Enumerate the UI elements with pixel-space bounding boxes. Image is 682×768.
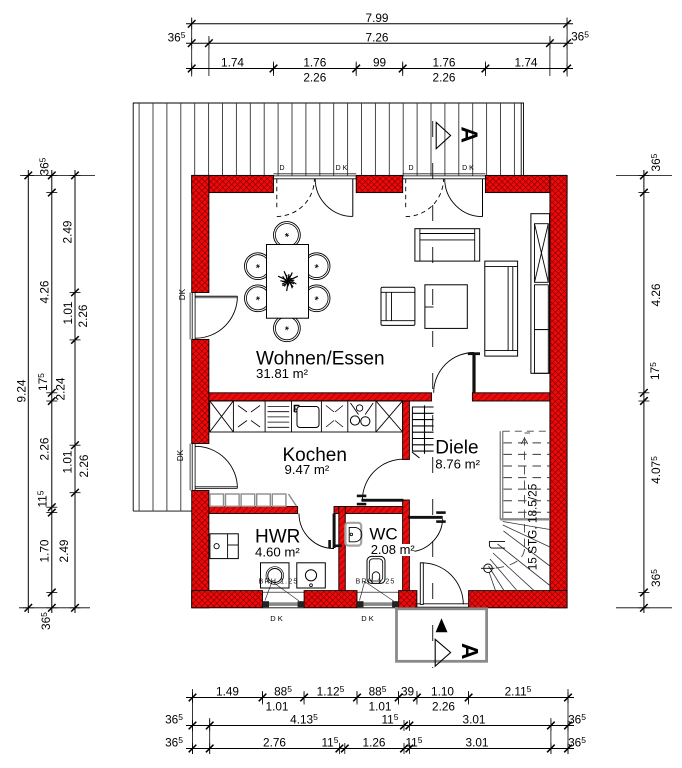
svg-text:2.08 m²: 2.08 m² bbox=[371, 542, 416, 557]
svg-text:9.47 m²: 9.47 m² bbox=[285, 462, 330, 477]
svg-text:1.76: 1.76 bbox=[433, 56, 456, 70]
svg-text:1.76: 1.76 bbox=[303, 56, 326, 70]
svg-text:8.76 m²: 8.76 m² bbox=[435, 457, 480, 472]
svg-text:2.26: 2.26 bbox=[303, 71, 326, 85]
svg-text:1.10: 1.10 bbox=[431, 684, 454, 698]
svg-text:1.26: 1.26 bbox=[363, 735, 386, 749]
svg-text:7.99: 7.99 bbox=[366, 11, 389, 25]
svg-text:D: D bbox=[408, 165, 413, 172]
svg-text:A: A bbox=[457, 126, 483, 143]
svg-text:3.01: 3.01 bbox=[466, 735, 489, 749]
svg-text:2.49: 2.49 bbox=[61, 221, 75, 244]
svg-text:2.26: 2.26 bbox=[432, 700, 455, 714]
svg-text:15 STG. 18.5/25: 15 STG. 18.5/25 bbox=[526, 483, 540, 570]
svg-text:4.60 m²: 4.60 m² bbox=[255, 545, 300, 560]
svg-text:4.26: 4.26 bbox=[649, 283, 663, 306]
svg-text:1.70: 1.70 bbox=[38, 539, 52, 562]
svg-text:WC: WC bbox=[369, 525, 397, 544]
svg-text:2.24: 2.24 bbox=[54, 377, 68, 400]
svg-text:9.24: 9.24 bbox=[15, 379, 29, 402]
svg-text:1.01: 1.01 bbox=[61, 302, 75, 325]
svg-text:3.01: 3.01 bbox=[463, 712, 486, 726]
svg-text:4.26: 4.26 bbox=[38, 280, 52, 303]
svg-text:2.26: 2.26 bbox=[76, 304, 90, 327]
svg-text:1.74: 1.74 bbox=[221, 56, 244, 70]
svg-text:DK: DK bbox=[176, 449, 185, 461]
svg-text:39: 39 bbox=[401, 684, 414, 698]
svg-text:Diele: Diele bbox=[435, 438, 478, 459]
svg-text:D K: D K bbox=[361, 614, 374, 623]
svg-text:1.49: 1.49 bbox=[216, 684, 239, 698]
svg-text:D: D bbox=[279, 165, 284, 172]
svg-text:1.01: 1.01 bbox=[266, 700, 289, 714]
svg-text:31.81 m²: 31.81 m² bbox=[256, 366, 309, 381]
svg-text:1.74: 1.74 bbox=[515, 56, 538, 70]
svg-text:2.26: 2.26 bbox=[77, 454, 91, 477]
svg-text:D K: D K bbox=[336, 165, 348, 172]
svg-text:2.76: 2.76 bbox=[263, 735, 286, 749]
svg-text:1.01: 1.01 bbox=[61, 451, 75, 474]
svg-text:7.26: 7.26 bbox=[366, 30, 389, 44]
svg-text:2.26: 2.26 bbox=[38, 437, 52, 460]
svg-text:2.26: 2.26 bbox=[433, 71, 456, 85]
svg-text:D K: D K bbox=[462, 165, 474, 172]
svg-text:D K: D K bbox=[270, 614, 283, 623]
svg-text:99: 99 bbox=[373, 56, 386, 70]
svg-text:2.49: 2.49 bbox=[57, 540, 71, 563]
svg-text:A: A bbox=[457, 643, 483, 660]
svg-text:DK: DK bbox=[178, 288, 187, 300]
